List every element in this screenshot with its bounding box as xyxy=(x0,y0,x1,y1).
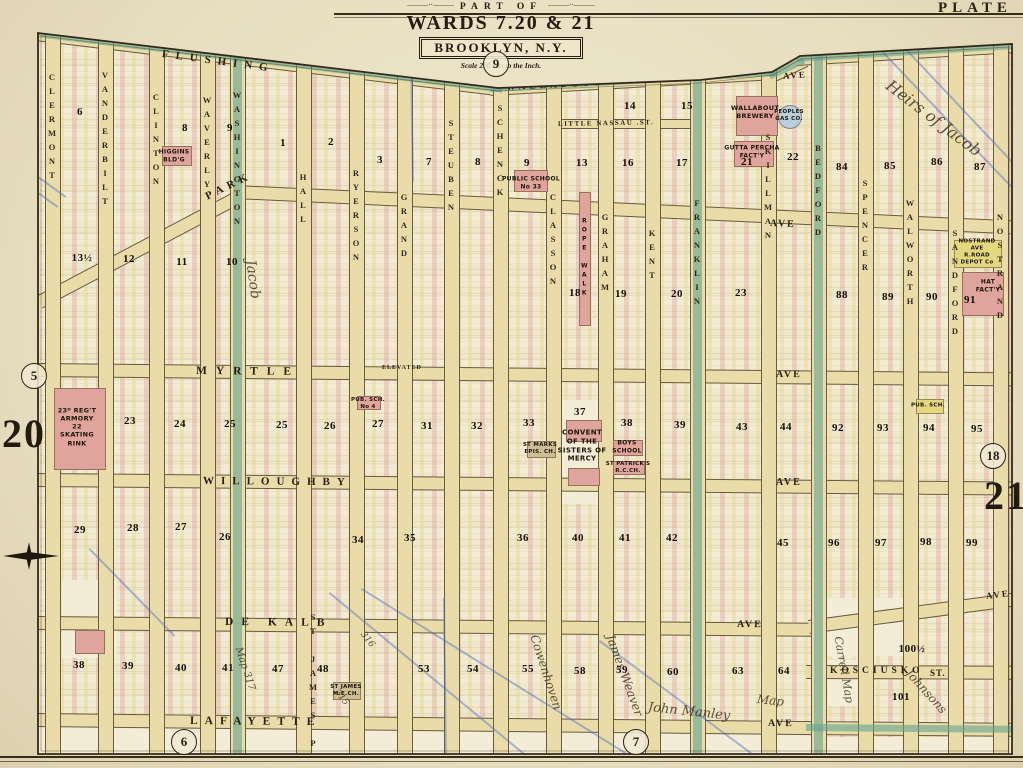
block-number-16-12: 16 xyxy=(622,157,634,169)
block-number-63-77: 63 xyxy=(732,665,744,677)
block-number-38-65: 38 xyxy=(73,659,85,671)
block-number-38-42: 38 xyxy=(621,417,633,429)
plate-label: PLATE xyxy=(938,0,1012,17)
block-number-17-13: 17 xyxy=(676,157,688,169)
landmark-pub-sch: PUB. SCH. No 4 xyxy=(351,397,385,411)
block-number-48-70: 48 xyxy=(317,663,329,675)
adjacent-plate-18-badge: 18 xyxy=(980,443,1006,469)
block-number-45-60: 45 xyxy=(777,537,789,549)
landmark-23-reg-t: 23ᴰ REG'T ARMORY 22 SKATING RINK xyxy=(58,407,97,448)
block-number-85-17: 85 xyxy=(884,160,896,172)
street-label-graham: GRAHAM xyxy=(600,212,610,296)
map-sheet: CLERMONTVANDERBILTCLINTONWAVERLYWASHINGT… xyxy=(0,0,1023,768)
street-label-steuben: STEUBEN xyxy=(446,118,456,216)
block-number-13-9: 13 xyxy=(576,157,588,169)
block-number-64-78: 64 xyxy=(778,665,790,677)
landmark-nostrand-ave: NOSTRAND AVE R.ROAD DEPOT Co xyxy=(954,238,1000,266)
street-label-spencer: SPENCER xyxy=(860,178,870,276)
title-part-of: PART OF xyxy=(345,2,657,12)
block-number-35-55: 35 xyxy=(404,532,416,544)
street-label-bedford: BEDFORD xyxy=(813,143,823,241)
block-number-53-71: 53 xyxy=(418,663,430,675)
block-number-6-0: 6 xyxy=(77,106,83,118)
block-number-58-74: 58 xyxy=(574,665,586,677)
street-label-franklin: FRANKLIN xyxy=(692,198,702,310)
street-kent xyxy=(645,73,661,754)
block-number-92-46: 92 xyxy=(832,422,844,434)
street-label-ave-9: AVE xyxy=(776,369,802,380)
block-number-27-52: 27 xyxy=(175,521,187,533)
building-12 xyxy=(75,630,105,654)
adjacent-plate-5-badge: 5 xyxy=(21,363,47,389)
block-number-40-67: 40 xyxy=(175,662,187,674)
block-number-7-6: 7 xyxy=(426,156,432,168)
compass-star-icon xyxy=(3,540,59,572)
block-number-41-58: 41 xyxy=(619,532,631,544)
block-number-40-57: 40 xyxy=(572,532,584,544)
block-number-14-10: 14 xyxy=(624,100,636,112)
block-number-3-5: 3 xyxy=(377,154,383,166)
landmark-wallabout: WALLABOUT BREWERY xyxy=(731,104,779,120)
street-label-clinton: CLINTON xyxy=(151,92,161,190)
block-number-27-37: 27 xyxy=(372,418,384,430)
block-number-99-64: 99 xyxy=(966,537,978,549)
block-number-60-76: 60 xyxy=(667,666,679,678)
street-label-elevated-8: ELEVATED xyxy=(382,365,422,371)
street-label-waverly: WAVERLY xyxy=(202,95,212,193)
street-label-st-james-pl: ST JAMES PL xyxy=(308,612,318,766)
block-number-88-28: 88 xyxy=(836,289,848,301)
block-number-84-16: 84 xyxy=(836,161,848,173)
block-number-10-23: 10 xyxy=(226,256,238,268)
atlas-plate: CLERMONTVANDERBILTCLINTONWAVERLYWASHINGT… xyxy=(0,0,1023,768)
block-number-42-59: 42 xyxy=(666,532,678,544)
block-number-25-35: 25 xyxy=(276,419,288,431)
teal-main-lafayette-east xyxy=(806,724,1012,733)
block-number-34-54: 34 xyxy=(352,534,364,546)
block-number-97-62: 97 xyxy=(875,537,887,549)
plate-bottom-rule xyxy=(0,756,1023,758)
building-2 xyxy=(568,468,600,486)
block-number-96-61: 96 xyxy=(828,537,840,549)
street-nostrand xyxy=(993,39,1009,754)
block-number-8-7: 8 xyxy=(475,156,481,168)
street-label-vanderbilt: VANDERBILT xyxy=(100,70,110,210)
teal-main-franklin xyxy=(693,70,702,754)
block-number-98-63: 98 xyxy=(920,536,932,548)
block-number-94-48: 94 xyxy=(923,422,935,434)
block-number-2-4: 2 xyxy=(328,136,334,148)
block-number-87-19: 87 xyxy=(974,161,986,173)
block-number-89-29: 89 xyxy=(882,291,894,303)
plate-bottom-rule-thin xyxy=(0,761,1023,762)
street-label-ave-13: AVE xyxy=(737,619,763,630)
landmark-hat: HAT FACT'Y xyxy=(976,279,1001,294)
street-spencer xyxy=(858,46,874,754)
street-label-walworth: WALWORTH xyxy=(905,198,915,310)
street-label-lafayette-15: LAFAYETTE xyxy=(190,715,321,728)
street-label-classon: CLASSON xyxy=(548,192,558,290)
block-number-9-8: 9 xyxy=(524,157,530,169)
title-wards: WARDS 7.20 & 21 xyxy=(345,12,657,35)
block-number-95-49: 95 xyxy=(971,423,983,435)
block-number-47-69: 47 xyxy=(272,663,284,675)
block-number-33-40: 33 xyxy=(523,417,535,429)
block-number-39-43: 39 xyxy=(674,419,686,431)
street-label-kent: KENT xyxy=(647,228,657,284)
block-number-32-39: 32 xyxy=(471,420,483,432)
block-number-24-33: 24 xyxy=(174,418,186,430)
block-number-55-73: 55 xyxy=(522,663,534,675)
block-number-12-21: 12 xyxy=(123,253,135,265)
street-label-myrtle-7: MYRTLE xyxy=(196,365,300,378)
block-number-9-2: 9 xyxy=(227,122,233,134)
street-label-flushing-0: FLUSHING xyxy=(161,48,275,75)
block-number-23-32: 23 xyxy=(124,415,136,427)
block-number-18-24: 18 xyxy=(569,287,581,299)
block-number-26-36: 26 xyxy=(324,420,336,432)
adjacent-plate-9-badge: 9 xyxy=(483,51,509,77)
street-label-ave-6: AVE xyxy=(770,218,796,230)
street-label-clermont: CLERMONT xyxy=(47,72,57,184)
block-number-100½-79: 100½ xyxy=(899,643,926,655)
block-number-41-68: 41 xyxy=(222,662,234,674)
street-label-st-18: ST. xyxy=(930,668,946,678)
page-number-right: 21 xyxy=(984,472,1023,519)
block-number-19-25: 19 xyxy=(615,288,627,300)
block-number-31-38: 31 xyxy=(421,420,433,432)
landmark-rope-walk: ROPE WALK xyxy=(580,218,588,299)
landmark-higgins: HIGGINS BLD'G xyxy=(159,149,190,164)
block-number-23-27: 23 xyxy=(735,287,747,299)
landmark-st-marks: ST MARKS EPIS. CH. xyxy=(523,442,557,456)
block-number-8-1: 8 xyxy=(182,122,188,134)
block-number-29-50: 29 xyxy=(74,524,86,536)
landmark-convent: CONVENT OF THE SISTERS OF MERCY xyxy=(558,429,607,464)
street-label-ave-11: AVE xyxy=(776,477,802,488)
block-number-26-53: 26 xyxy=(219,531,231,543)
block-number-13½-20: 13½ xyxy=(72,252,93,264)
adjacent-plate-6-badge: 6 xyxy=(171,729,197,755)
street-label-grand: GRAND xyxy=(399,192,409,262)
block-number-15-11: 15 xyxy=(681,100,693,112)
landmark-public-school: PUBLIC SCHOOL No 33 xyxy=(502,176,560,191)
street-label-hall: HALL xyxy=(298,172,308,228)
block-number-44-45: 44 xyxy=(780,421,792,433)
street-label-nostrand: NOSTRAND xyxy=(995,212,1005,324)
street-label-ryerson: RYERSON xyxy=(351,168,361,266)
block-number-90-30: 90 xyxy=(926,291,938,303)
street-label-ave-16: AVE xyxy=(768,718,794,729)
block-number-54-72: 54 xyxy=(467,663,479,675)
block-number-91-31: 91 xyxy=(964,294,976,306)
landmark-pub-sch: PUB. SCH. xyxy=(911,403,945,410)
landmark-st-patrick-s: ST PATRICK'S R.C.CH. xyxy=(606,461,651,475)
block-number-36-56: 36 xyxy=(517,532,529,544)
page-number-left: 20 xyxy=(2,410,46,457)
block-number-20-26: 20 xyxy=(671,288,683,300)
block-number-43-44: 43 xyxy=(736,421,748,433)
landmark-peoples: PEOPLES GAS CO. xyxy=(774,109,804,123)
block-number-86-18: 86 xyxy=(931,156,943,168)
street-label-de-kalb-12: DE KALB xyxy=(225,616,333,629)
block-number-11-22: 11 xyxy=(176,256,187,268)
block-number-25-34: 25 xyxy=(224,418,236,430)
street-label-willoughby-10: WILLOUGHBY xyxy=(203,475,352,488)
landmark-boys: BOYS SCHOOL xyxy=(612,440,642,455)
street-label-washington: WASHINGTON xyxy=(232,90,242,230)
adjacent-plate-7-badge: 7 xyxy=(623,729,649,755)
block-number-39-66: 39 xyxy=(122,660,134,672)
block-number-1-3: 1 xyxy=(280,137,286,149)
landmark-gutta-percha: GUTTA PERCHA FACT'Y xyxy=(724,145,779,160)
annotation-map: Map xyxy=(756,692,784,709)
street-label-little-nassau-st-4: LITTLE NASSAU .ST. xyxy=(558,118,654,128)
block-number-101-80: 101 xyxy=(892,691,910,703)
block-number-22-15: 22 xyxy=(787,151,799,163)
block-number-37-41: 37 xyxy=(574,406,586,418)
block-number-93-47: 93 xyxy=(877,422,889,434)
block-number-28-51: 28 xyxy=(127,522,139,534)
street-label-ave-3: AVE xyxy=(783,69,807,81)
